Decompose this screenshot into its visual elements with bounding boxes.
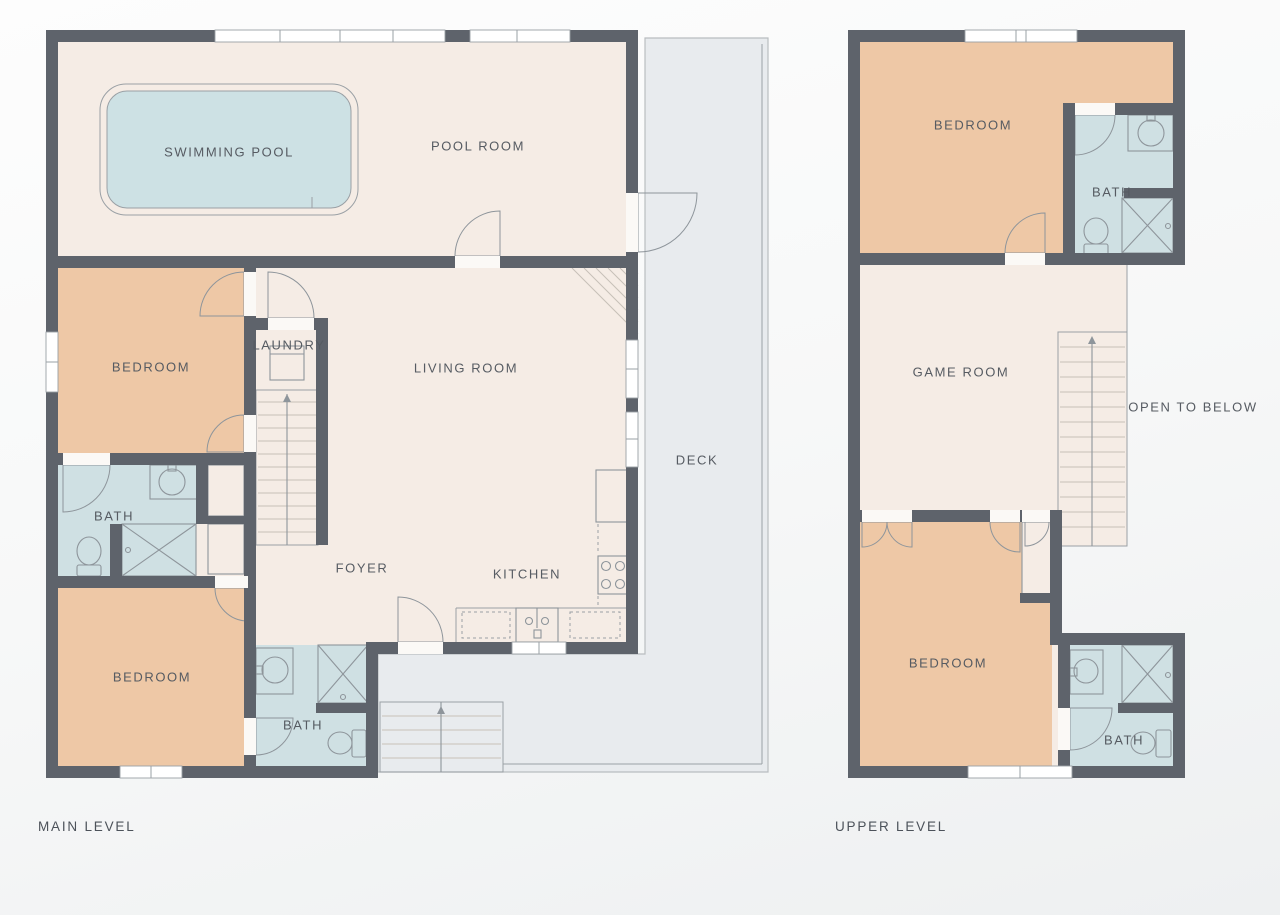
room-label-upper-bath-bottom: BATH: [1104, 733, 1144, 748]
kitchen-sink-icon: [516, 608, 558, 642]
room-label-kitchen: KITCHEN: [493, 567, 561, 582]
room-label-main-bath-left: BATH: [94, 509, 134, 524]
room-label-upper-bedroom-top: BEDROOM: [934, 118, 1012, 133]
upper-level-title: UPPER LEVEL: [835, 819, 947, 834]
main-level-plan: [46, 30, 768, 778]
room-label-laundry: LAUNDRY: [252, 338, 325, 353]
room-label-open-to-below: OPEN TO BELOW: [1128, 400, 1257, 415]
floorplan-svg: [0, 0, 1280, 915]
room-label-living-room: LIVING ROOM: [414, 361, 518, 376]
room-label-main-bedroom-top: BEDROOM: [112, 360, 190, 375]
room-label-upper-bath-top: BATH: [1092, 185, 1132, 200]
room-label-pool-room: POOL ROOM: [431, 139, 525, 154]
floorplan-page: SWIMMING POOL POOL ROOM BEDROOM LAUNDRY …: [0, 0, 1280, 915]
room-label-main-bath-bottom: BATH: [283, 718, 323, 733]
upper-closet: [1022, 522, 1052, 595]
fridge-icon: [596, 470, 628, 522]
room-label-swimming-pool: SWIMMING POOL: [164, 145, 294, 160]
room-label-game-room: GAME ROOM: [913, 365, 1010, 380]
upper-floors: [860, 42, 1173, 766]
main-level-title: MAIN LEVEL: [38, 819, 136, 834]
room-label-main-bedroom-bottom: BEDROOM: [113, 670, 191, 685]
room-label-upper-bedroom-bottom: BEDROOM: [909, 656, 987, 671]
room-label-deck: DECK: [676, 453, 719, 468]
room-label-foyer: FOYER: [336, 561, 389, 576]
